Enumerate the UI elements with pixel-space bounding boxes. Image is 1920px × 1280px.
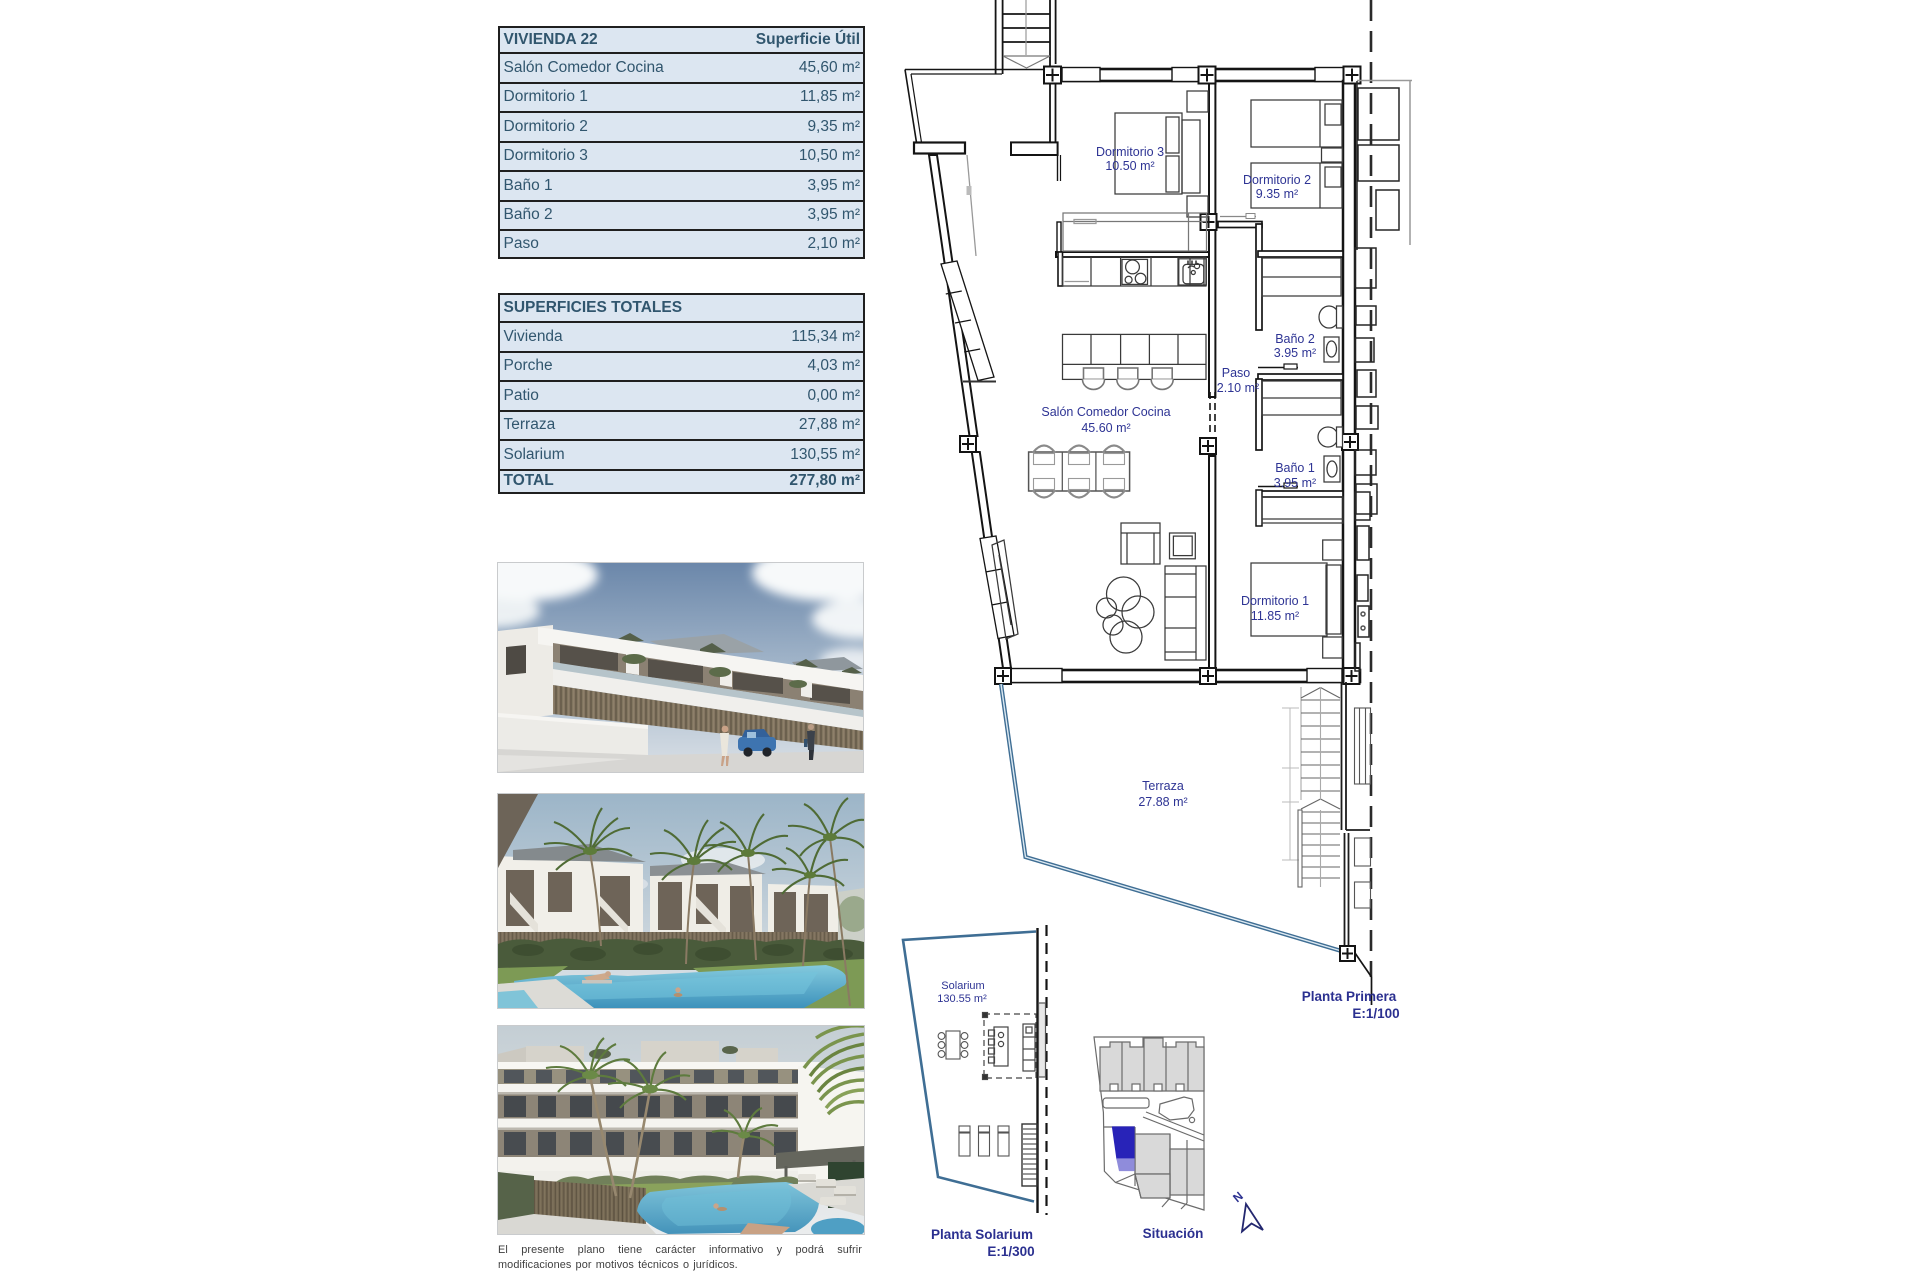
svg-text:Dormitorio 2: Dormitorio 2 bbox=[1243, 173, 1311, 187]
svg-text:Situación: Situación bbox=[1143, 1226, 1204, 1241]
svg-text:Paso: Paso bbox=[1222, 366, 1251, 380]
svg-text:10.50 m²: 10.50 m² bbox=[1105, 159, 1154, 173]
svg-text:2.10 m²: 2.10 m² bbox=[1217, 381, 1259, 395]
svg-text:Baño 2: Baño 2 bbox=[1275, 332, 1315, 346]
svg-text:3.95 m²: 3.95 m² bbox=[1274, 346, 1316, 360]
svg-text:Salón Comedor Cocina: Salón Comedor Cocina bbox=[1041, 405, 1170, 419]
svg-text:130.55 m²: 130.55 m² bbox=[937, 993, 987, 1005]
svg-text:45.60 m²: 45.60 m² bbox=[1081, 421, 1130, 435]
svg-text:11.85 m²: 11.85 m² bbox=[1251, 609, 1299, 623]
svg-text:27.88 m²: 27.88 m² bbox=[1138, 795, 1187, 809]
svg-text:Baño 1: Baño 1 bbox=[1275, 461, 1315, 475]
svg-text:3.95 m²: 3.95 m² bbox=[1274, 476, 1316, 490]
svg-text:N: N bbox=[1230, 1189, 1246, 1205]
svg-text:Dormitorio 3: Dormitorio 3 bbox=[1096, 145, 1164, 159]
svg-text:E:1/300: E:1/300 bbox=[987, 1244, 1034, 1259]
svg-text:Planta Primera: Planta Primera bbox=[1302, 989, 1397, 1004]
svg-text:Solarium: Solarium bbox=[941, 980, 984, 992]
svg-text:E:1/100: E:1/100 bbox=[1352, 1006, 1399, 1021]
svg-text:Planta Solarium: Planta Solarium bbox=[931, 1227, 1033, 1242]
svg-text:9.35 m²: 9.35 m² bbox=[1256, 187, 1298, 201]
svg-text:Terraza: Terraza bbox=[1142, 779, 1184, 793]
svg-text:Dormitorio 1: Dormitorio 1 bbox=[1241, 594, 1309, 608]
